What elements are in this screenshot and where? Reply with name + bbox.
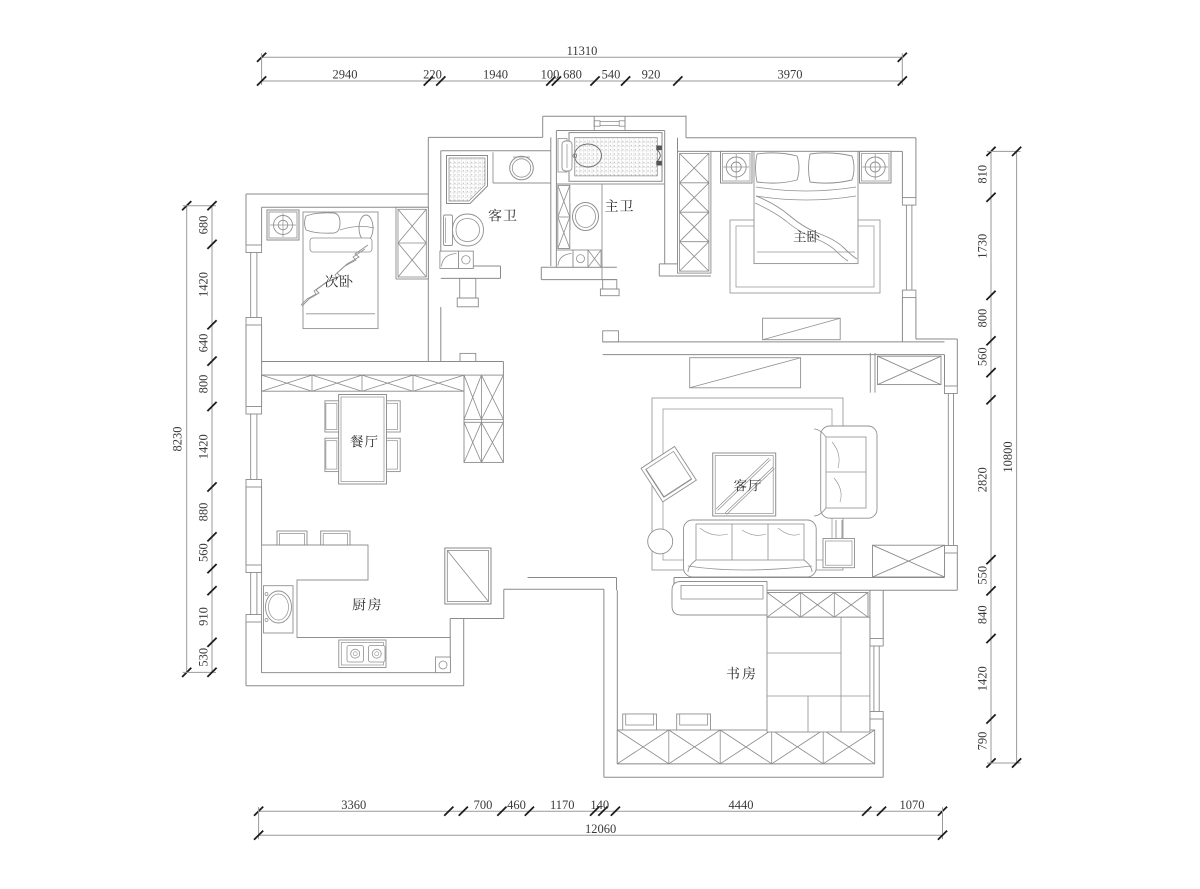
svg-text:12060: 12060	[585, 822, 616, 836]
svg-text:880: 880	[196, 503, 210, 522]
svg-text:550: 550	[975, 566, 989, 585]
svg-text:1940: 1940	[483, 68, 508, 82]
svg-text:560: 560	[975, 347, 989, 366]
svg-text:540: 540	[602, 68, 621, 82]
svg-text:4440: 4440	[729, 798, 754, 812]
svg-text:800: 800	[196, 375, 210, 394]
svg-text:220: 220	[423, 68, 442, 82]
svg-text:10800: 10800	[1001, 441, 1015, 472]
svg-text:3360: 3360	[341, 798, 366, 812]
svg-text:840: 840	[975, 605, 989, 624]
svg-text:8230: 8230	[171, 427, 185, 452]
svg-text:460: 460	[507, 798, 526, 812]
svg-text:530: 530	[196, 648, 210, 667]
svg-text:100: 100	[541, 68, 560, 82]
svg-text:11310: 11310	[567, 44, 598, 58]
svg-text:2820: 2820	[975, 467, 989, 492]
svg-text:810: 810	[975, 165, 989, 184]
svg-text:3970: 3970	[778, 68, 803, 82]
svg-text:1170: 1170	[550, 798, 575, 812]
svg-text:140: 140	[590, 798, 609, 812]
svg-text:680: 680	[196, 216, 210, 235]
svg-text:560: 560	[196, 543, 210, 562]
svg-text:640: 640	[196, 334, 210, 353]
svg-text:1730: 1730	[975, 234, 989, 259]
svg-text:1070: 1070	[900, 798, 925, 812]
svg-text:920: 920	[642, 68, 661, 82]
svg-text:790: 790	[975, 732, 989, 751]
svg-text:910: 910	[196, 607, 210, 626]
svg-text:1420: 1420	[196, 434, 210, 459]
svg-text:1420: 1420	[975, 666, 989, 691]
svg-text:2940: 2940	[333, 68, 358, 82]
svg-text:1420: 1420	[196, 272, 210, 297]
svg-text:700: 700	[474, 798, 493, 812]
svg-text:680: 680	[563, 68, 582, 82]
svg-text:800: 800	[975, 309, 989, 328]
